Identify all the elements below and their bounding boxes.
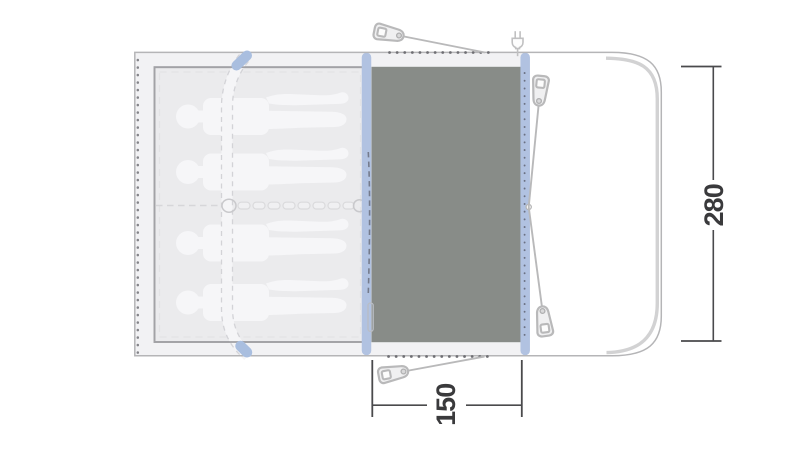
svg-text:150: 150 — [431, 384, 461, 426]
svg-text:280: 280 — [699, 184, 729, 226]
